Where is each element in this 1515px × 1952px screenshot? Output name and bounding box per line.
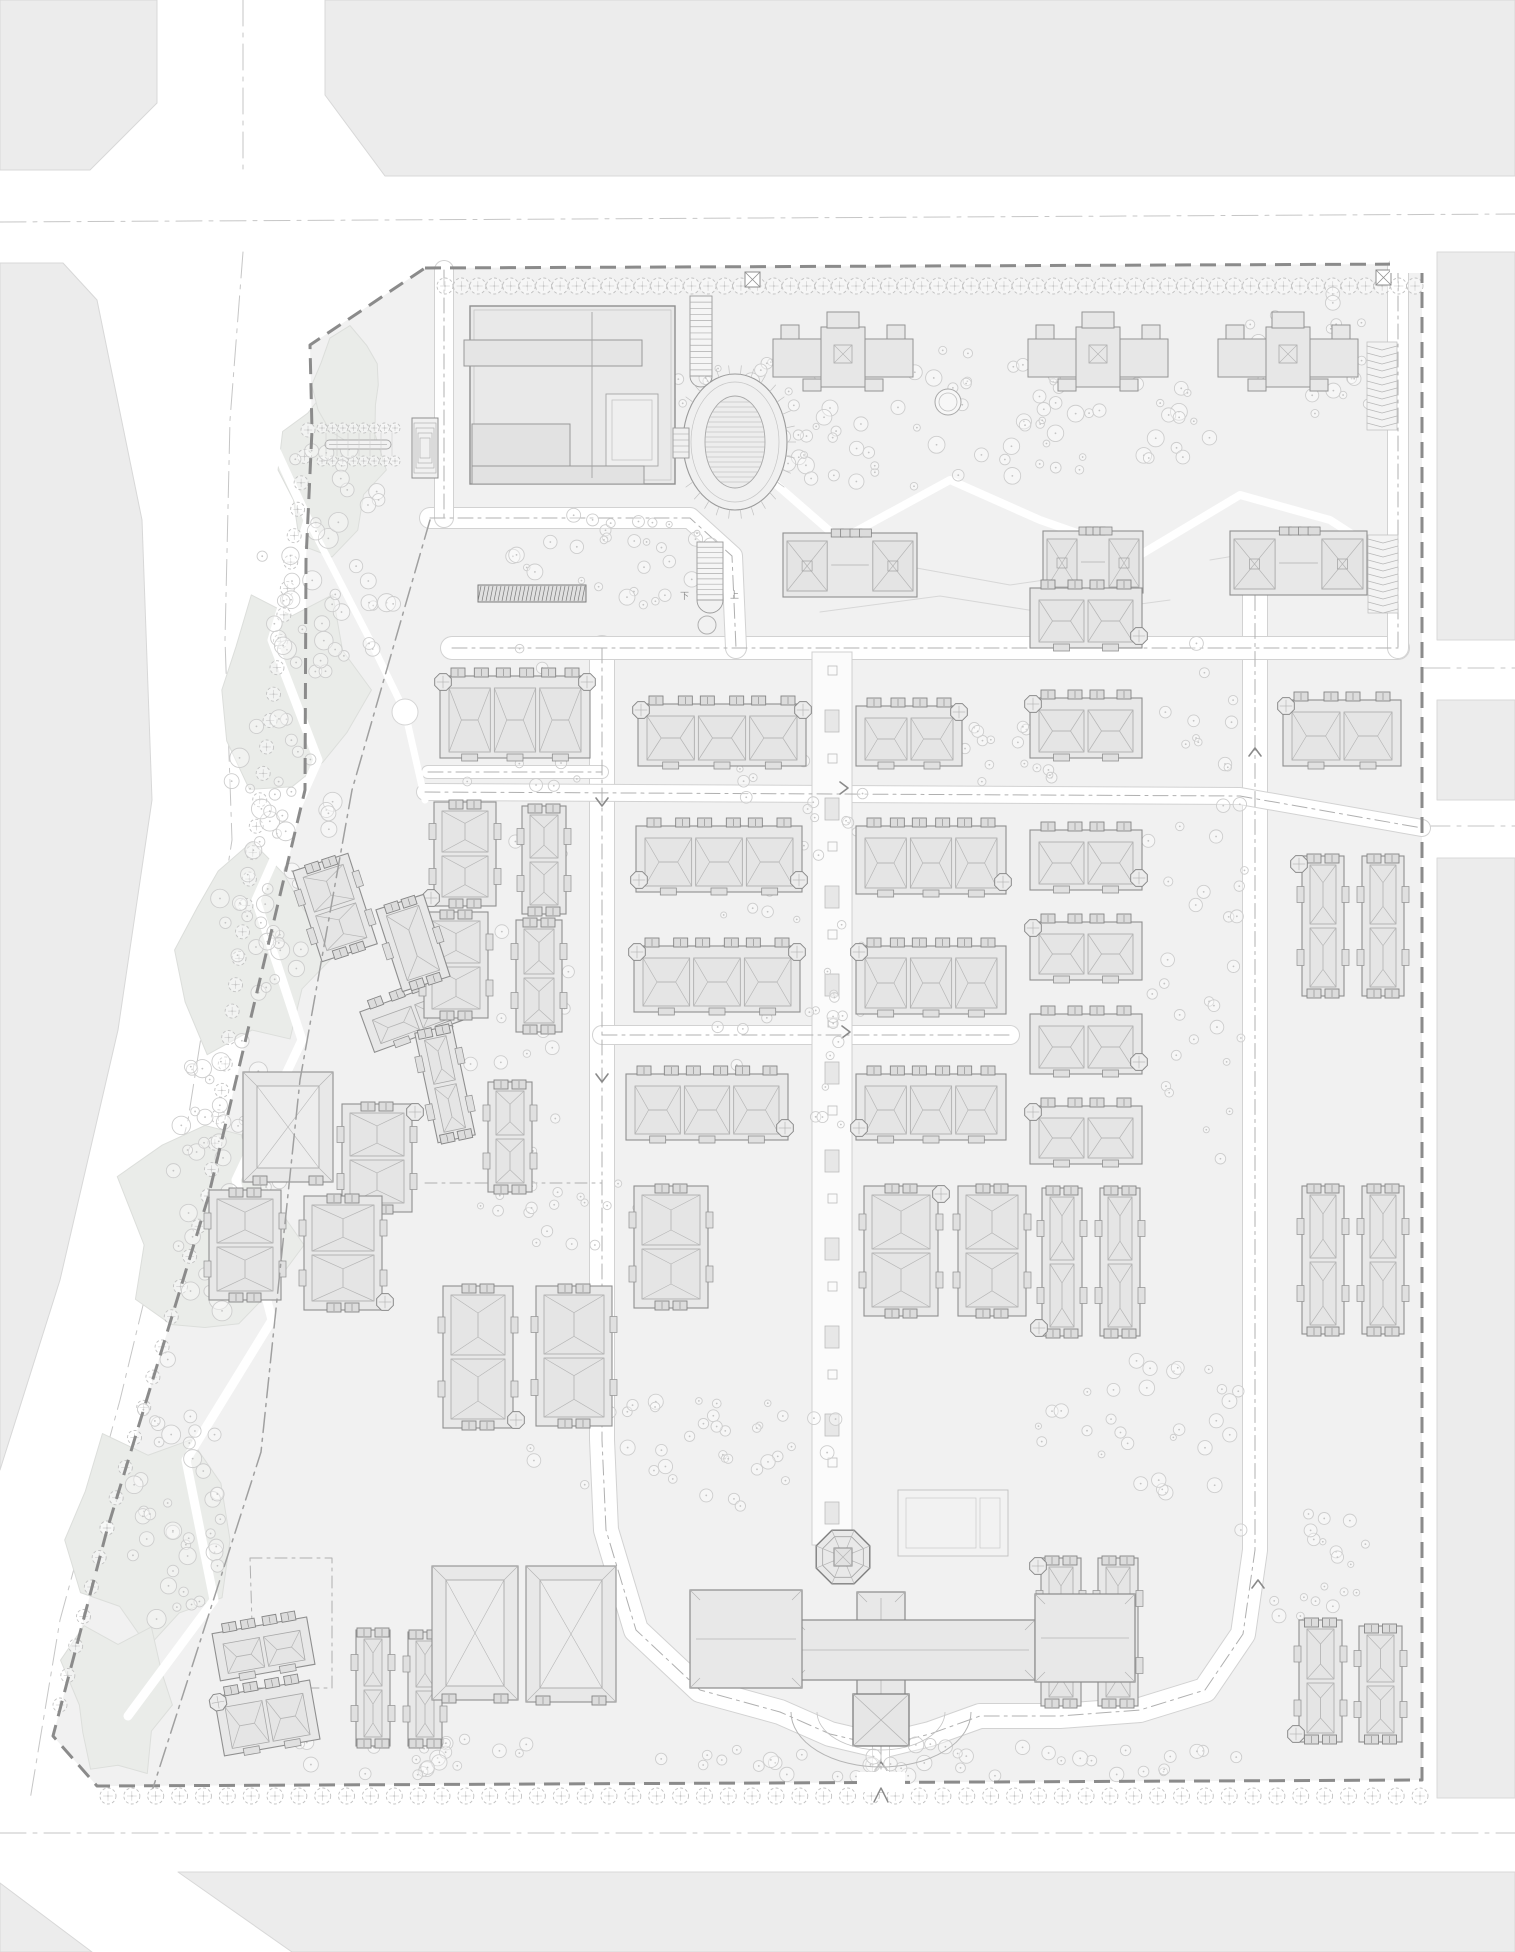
building [1357, 854, 1409, 998]
building [526, 1566, 616, 1705]
building [1095, 1186, 1145, 1338]
building [783, 529, 917, 597]
building [1025, 690, 1142, 761]
site-plan: 下 上 [0, 0, 1515, 1952]
building [1297, 1184, 1349, 1336]
building [531, 1284, 617, 1428]
building [511, 918, 567, 1034]
building [859, 1184, 949, 1318]
building [432, 1566, 518, 1703]
building [1030, 580, 1147, 651]
building [856, 818, 1011, 897]
building [633, 696, 812, 769]
building [243, 1072, 333, 1185]
building [856, 698, 967, 769]
building [299, 1194, 393, 1312]
building [851, 938, 1006, 1017]
building [1025, 1098, 1142, 1167]
building [953, 1184, 1031, 1318]
building [1030, 822, 1147, 893]
ramp-down-label: 下 [680, 593, 689, 602]
building [351, 1628, 395, 1748]
building [1278, 692, 1401, 769]
building [423, 800, 501, 908]
site-plan-svg [0, 0, 1515, 1952]
building [438, 1284, 524, 1430]
building [629, 1184, 713, 1310]
building [851, 1066, 1006, 1143]
building [1230, 527, 1367, 595]
building [204, 1188, 286, 1302]
building [483, 1080, 537, 1194]
building [517, 804, 571, 916]
building [1354, 1624, 1407, 1744]
building [631, 818, 808, 895]
building [1030, 1006, 1147, 1077]
building [629, 938, 806, 1015]
building [435, 668, 596, 761]
building [1025, 914, 1142, 983]
building [1357, 1184, 1409, 1336]
ramp-up-label: 上 [730, 592, 739, 601]
building [626, 1066, 793, 1143]
pavilion [816, 1530, 870, 1584]
